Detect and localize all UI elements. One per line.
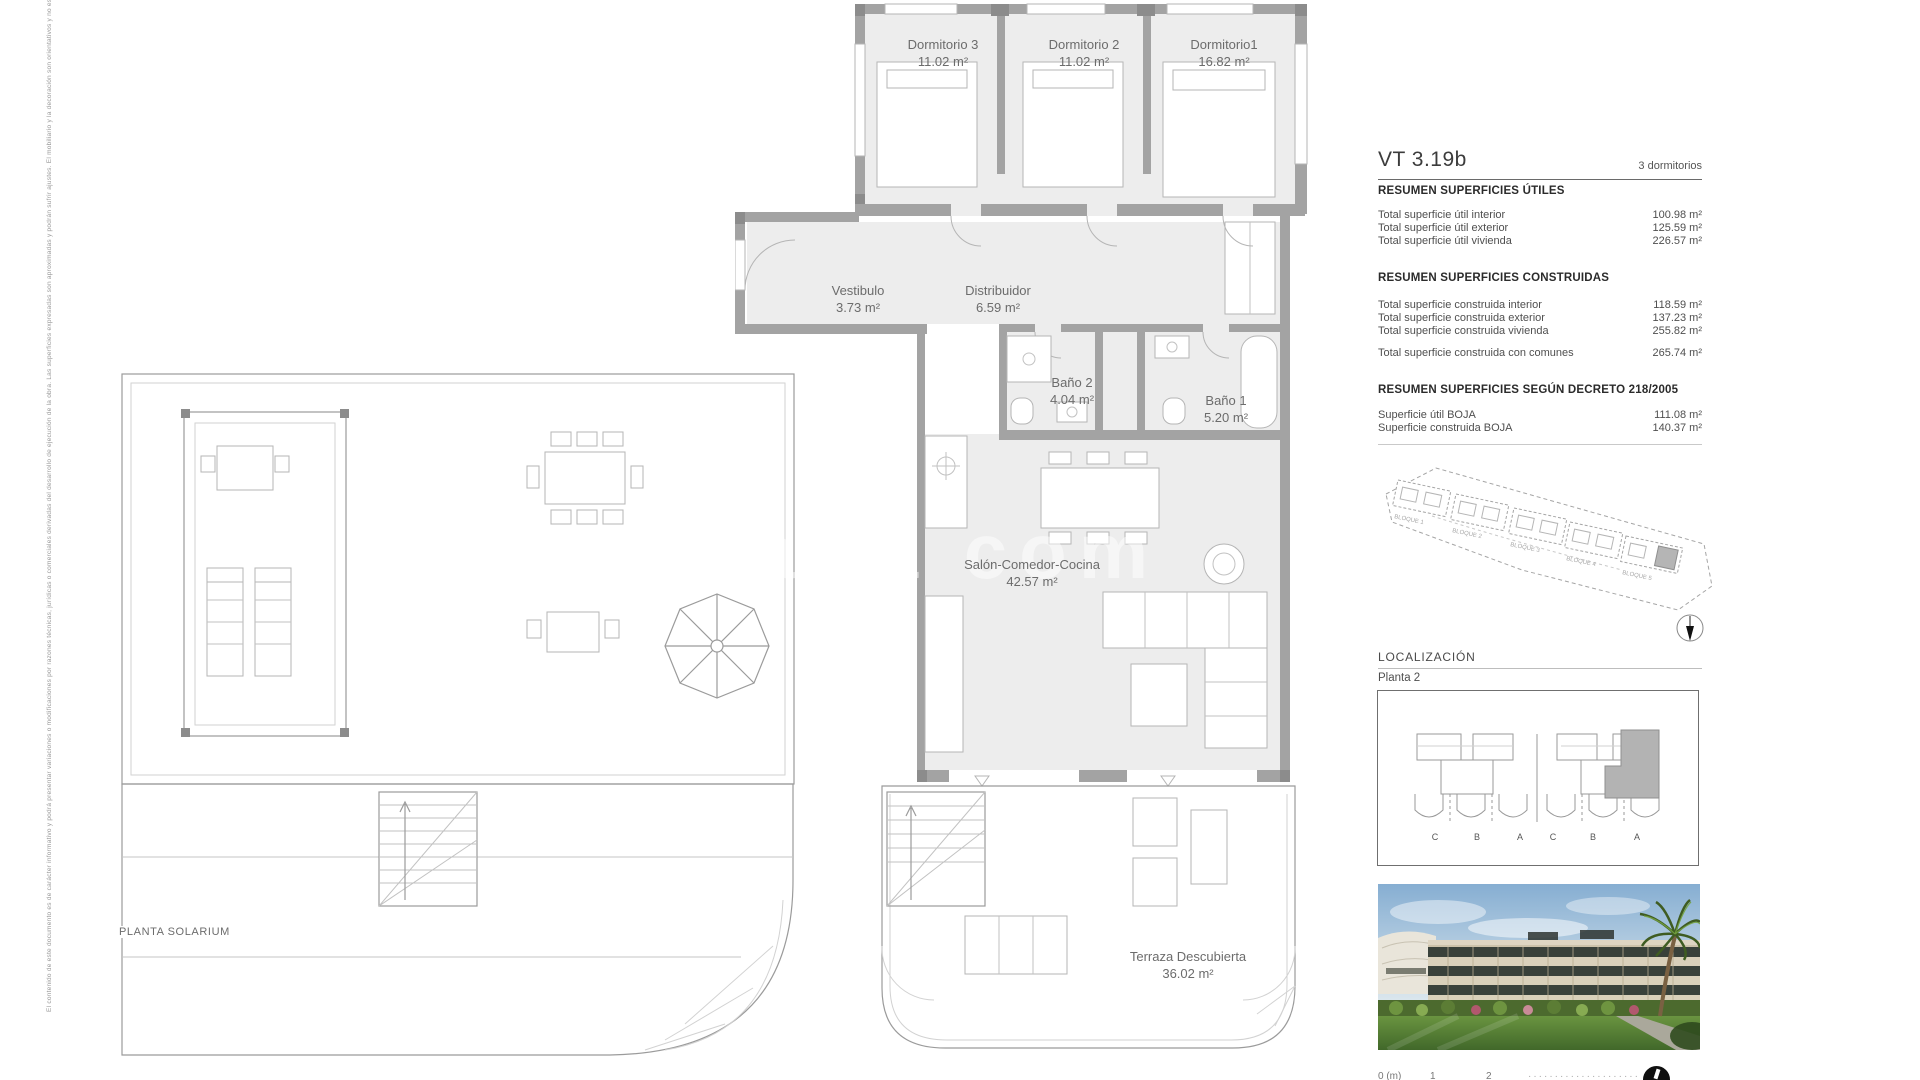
room-label-vestibulo: Vestibulo3.73 m² — [832, 282, 885, 316]
room-label-salon: Salón-Comedor-Cocina42.57 m² — [964, 556, 1100, 590]
highlighted-unit — [1654, 546, 1678, 570]
localizacion-floor-label: Planta 2 — [1378, 672, 1420, 684]
bloque-2: BLOQUE 2 — [1448, 494, 1509, 544]
table-row: Superficie útil BOJA111.08 m² — [1378, 409, 1702, 422]
section-title-utiles: RESUMEN SUPERFICIES ÚTILES — [1378, 185, 1702, 197]
table-row: Total superficie útil interior100.98 m² — [1378, 209, 1702, 222]
section-title-construidas: RESUMEN SUPERFICIES CONSTRUIDAS — [1378, 272, 1702, 284]
svg-text:B: B — [1474, 832, 1480, 842]
room-label-dormitorio1: Dormitorio116.82 m² — [1190, 36, 1257, 70]
bloque-4: BLOQUE 4 — [1562, 522, 1623, 572]
svg-text:C: C — [1432, 832, 1439, 842]
localizacion-heading: LOCALIZACIÓN — [1378, 650, 1702, 669]
bloque-1: BLOQUE 1 — [1390, 480, 1451, 530]
svg-text:BLOQUE 5: BLOQUE 5 — [1622, 570, 1653, 582]
table-row: Total superficie construida interior118.… — [1378, 299, 1702, 312]
table-row: Superficie construida BOJA140.37 m² — [1378, 422, 1702, 435]
room-label-dormitorio2: Dormitorio 211.02 m² — [1049, 36, 1120, 70]
apartment-plan-drawing — [735, 0, 1315, 1066]
legal-disclaimer-vertical: El contenido de este documento es de car… — [46, 57, 53, 1012]
bloque-5-highlighted: BLOQUE 5 — [1618, 536, 1683, 587]
site-key-plan: BLOQUE 1 BLOQUE 2 BLOQUE 3 BLOQUE 4 BLOQ… — [1372, 458, 1712, 653]
svg-text:C: C — [1550, 832, 1557, 842]
bloque-3: BLOQUE 3 — [1506, 508, 1567, 558]
table-row: Total superficie construida con comunes2… — [1378, 347, 1702, 360]
room-label-dormitorio3: Dormitorio 311.02 m² — [908, 36, 979, 70]
unit-bedrooms-label: 3 dormitorios — [1638, 160, 1702, 172]
svg-text:A: A — [1634, 832, 1640, 842]
table-row: Total superficie útil exterior125.59 m² — [1378, 222, 1702, 235]
svg-text:BLOQUE 1: BLOQUE 1 — [1394, 514, 1425, 526]
room-label-distribuidor: Distribuidor6.59 m² — [965, 282, 1031, 316]
room-label-bano1: Baño 15.20 m² — [1204, 392, 1248, 426]
table-row: Total superficie construida exterior137.… — [1378, 312, 1702, 325]
room-label-terraza: Terraza Descubierta36.02 m² — [1130, 948, 1246, 982]
plan-sheet: El contenido de este documento es de car… — [0, 0, 1920, 1080]
svg-text:BLOQUE 4: BLOQUE 4 — [1566, 556, 1597, 568]
solarium-plan-drawing — [105, 360, 810, 1066]
section-title-decreto: RESUMEN SUPERFICIES SEGÚN DECRETO 218/20… — [1378, 384, 1702, 396]
solarium-plan-title: PLANTA SOLARIUM — [116, 926, 233, 938]
room-label-bano2: Baño 24.04 m² — [1050, 374, 1094, 408]
svg-text:A: A — [1517, 832, 1523, 842]
table-row: Total superficie útil vivienda226.57 m² — [1378, 235, 1702, 248]
svg-text:B: B — [1590, 832, 1596, 842]
brand-logo — [1643, 1066, 1670, 1080]
north-arrow-icon — [1677, 615, 1703, 641]
localizacion-floor-diagram: C B A C B A — [1377, 690, 1699, 866]
table-row: Total superficie construida vivienda255.… — [1378, 325, 1702, 338]
unit-title-block: VT 3.19b 3 dormitorios — [1378, 148, 1702, 180]
building-render-photo — [1378, 884, 1700, 1050]
divider — [1378, 444, 1702, 445]
unit-code: VT 3.19b — [1378, 148, 1467, 172]
